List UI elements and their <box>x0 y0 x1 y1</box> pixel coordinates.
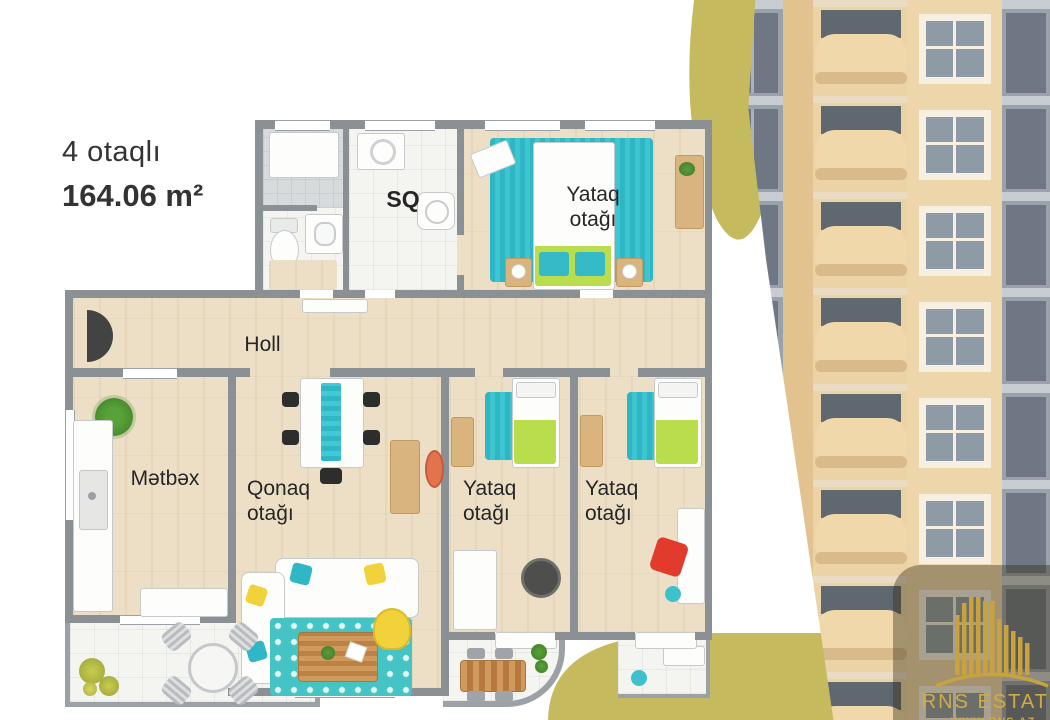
desk-bedroom-right <box>580 415 603 467</box>
balcony-chair-1 <box>467 648 485 659</box>
coffee-table <box>298 632 378 682</box>
kitchen-sink <box>79 470 108 530</box>
kitchen-faucet <box>88 492 96 500</box>
balcony-bench <box>663 646 705 666</box>
wall-bedroom-bedroom <box>570 377 578 632</box>
window-sill-bedroom-mid <box>495 632 557 649</box>
coffee-table-plant <box>321 646 335 660</box>
real-estate-floorplan-image: 4 otaqlı 164.06 m² <box>0 0 1050 720</box>
wall-bedrooms-bot-b <box>555 632 635 640</box>
balcony-plant-1 <box>531 644 547 660</box>
blanket-right <box>656 420 698 464</box>
balcony-plant-2 <box>535 660 548 673</box>
window-bedroom-top-2 <box>585 120 655 131</box>
watermark-brand: RNS ESTATE <box>922 691 1050 714</box>
wall-left-b <box>65 520 73 623</box>
sink-basin <box>314 222 336 246</box>
label-bedroom-top: Yataq otağı <box>547 182 639 232</box>
table-runner <box>321 383 341 461</box>
terrace-plant-2 <box>99 676 119 696</box>
floor-hall <box>73 298 705 377</box>
lamp-right <box>622 264 637 279</box>
plan-area: 164.06 m² <box>62 178 203 214</box>
bath-mat <box>269 260 337 290</box>
lamp-left <box>511 264 526 279</box>
balcony-chair-3 <box>467 691 485 702</box>
wall-sq-bedroom-a <box>457 129 464 235</box>
wall-left-top <box>255 120 263 298</box>
dining-chair-1 <box>282 392 299 407</box>
desk-bedroom-mid <box>451 417 474 467</box>
plan-header: 4 otaqlı 164.06 m² <box>62 136 203 214</box>
wall-hall-top-d <box>613 290 712 298</box>
balcony-chair-4 <box>495 691 513 702</box>
window-bedroom-top-1 <box>485 120 560 131</box>
living-cabinet <box>390 440 420 514</box>
wall-hall-bot-b <box>177 368 250 377</box>
wall-left-a <box>65 290 73 410</box>
blanket-mid <box>514 420 556 464</box>
wall-hall-bot-d <box>503 368 610 377</box>
window-bath <box>275 120 330 131</box>
wall-bedrooms-bot-c <box>695 632 712 640</box>
rug-bedroom-right <box>627 392 657 460</box>
wall-right <box>705 120 712 640</box>
wall-mirror <box>425 450 444 488</box>
shower-tray <box>269 132 339 178</box>
label-hall: Holl <box>215 332 310 357</box>
bed-pillow-left <box>539 252 569 276</box>
pillow-mid <box>516 382 556 398</box>
wall-hall-top-a <box>65 290 300 298</box>
terrace-wall-left <box>65 623 70 707</box>
bed-pillow-right <box>575 252 605 276</box>
wall-hall-bot-c <box>330 368 475 377</box>
wall-living-bedroom <box>441 377 449 688</box>
terrace-table <box>188 643 238 693</box>
label-sq: SQ <box>349 186 457 214</box>
dining-chair-2 <box>282 430 299 445</box>
wall-kitchen-bot-a <box>65 615 120 623</box>
balcony-table <box>460 660 526 692</box>
rns-logo-icon <box>933 573 1050 691</box>
dining-chair-3 <box>363 392 380 407</box>
balcony-decor <box>631 670 647 686</box>
ac-unit <box>302 299 368 313</box>
pillow-right <box>658 382 698 398</box>
dining-chair-4 <box>363 430 380 445</box>
wall-hall-bot-a <box>65 368 123 377</box>
wall-hall-top-c <box>395 290 580 298</box>
balcony-chair-2 <box>495 648 513 659</box>
armchair-yellow <box>373 608 411 650</box>
terrace-plant-3 <box>83 682 97 696</box>
wall-sq-bedroom-b <box>457 275 464 290</box>
kitchen-appliances <box>140 588 228 617</box>
label-bedroom-right: Yataq otağı <box>585 476 671 526</box>
wall-bedrooms-bot-a <box>441 632 495 640</box>
round-rug-mid <box>521 558 561 598</box>
rug-bedroom-mid <box>485 392 515 460</box>
terrace-wall-bottom <box>65 702 320 707</box>
washing-machine-door <box>370 139 396 165</box>
wall-hall-top-b <box>333 290 365 298</box>
plant-dresser <box>679 162 695 176</box>
plan-title: 4 otaqlı <box>62 136 203 169</box>
wardrobe-mid <box>453 550 497 630</box>
label-bedroom-mid: Yataq otağı <box>463 476 549 526</box>
watermark-url: WWW.RNS.AZ <box>951 716 1036 720</box>
decor-teal-dot <box>665 586 681 602</box>
wall-kitchen-living <box>228 377 236 615</box>
sofa-pillow-yellow-1 <box>363 562 387 586</box>
wall-hall-bot-e <box>638 368 712 377</box>
label-living: Qonaq otağı <box>247 476 347 526</box>
label-kitchen: Mətbəx <box>105 466 225 491</box>
wall-shower-divider <box>263 205 317 211</box>
glazing-kitchen <box>123 368 177 379</box>
window-sq <box>365 120 435 131</box>
watermark: RNS ESTATE WWW.RNS.AZ <box>893 565 1050 720</box>
window-sill-bedroom-right <box>635 632 697 649</box>
